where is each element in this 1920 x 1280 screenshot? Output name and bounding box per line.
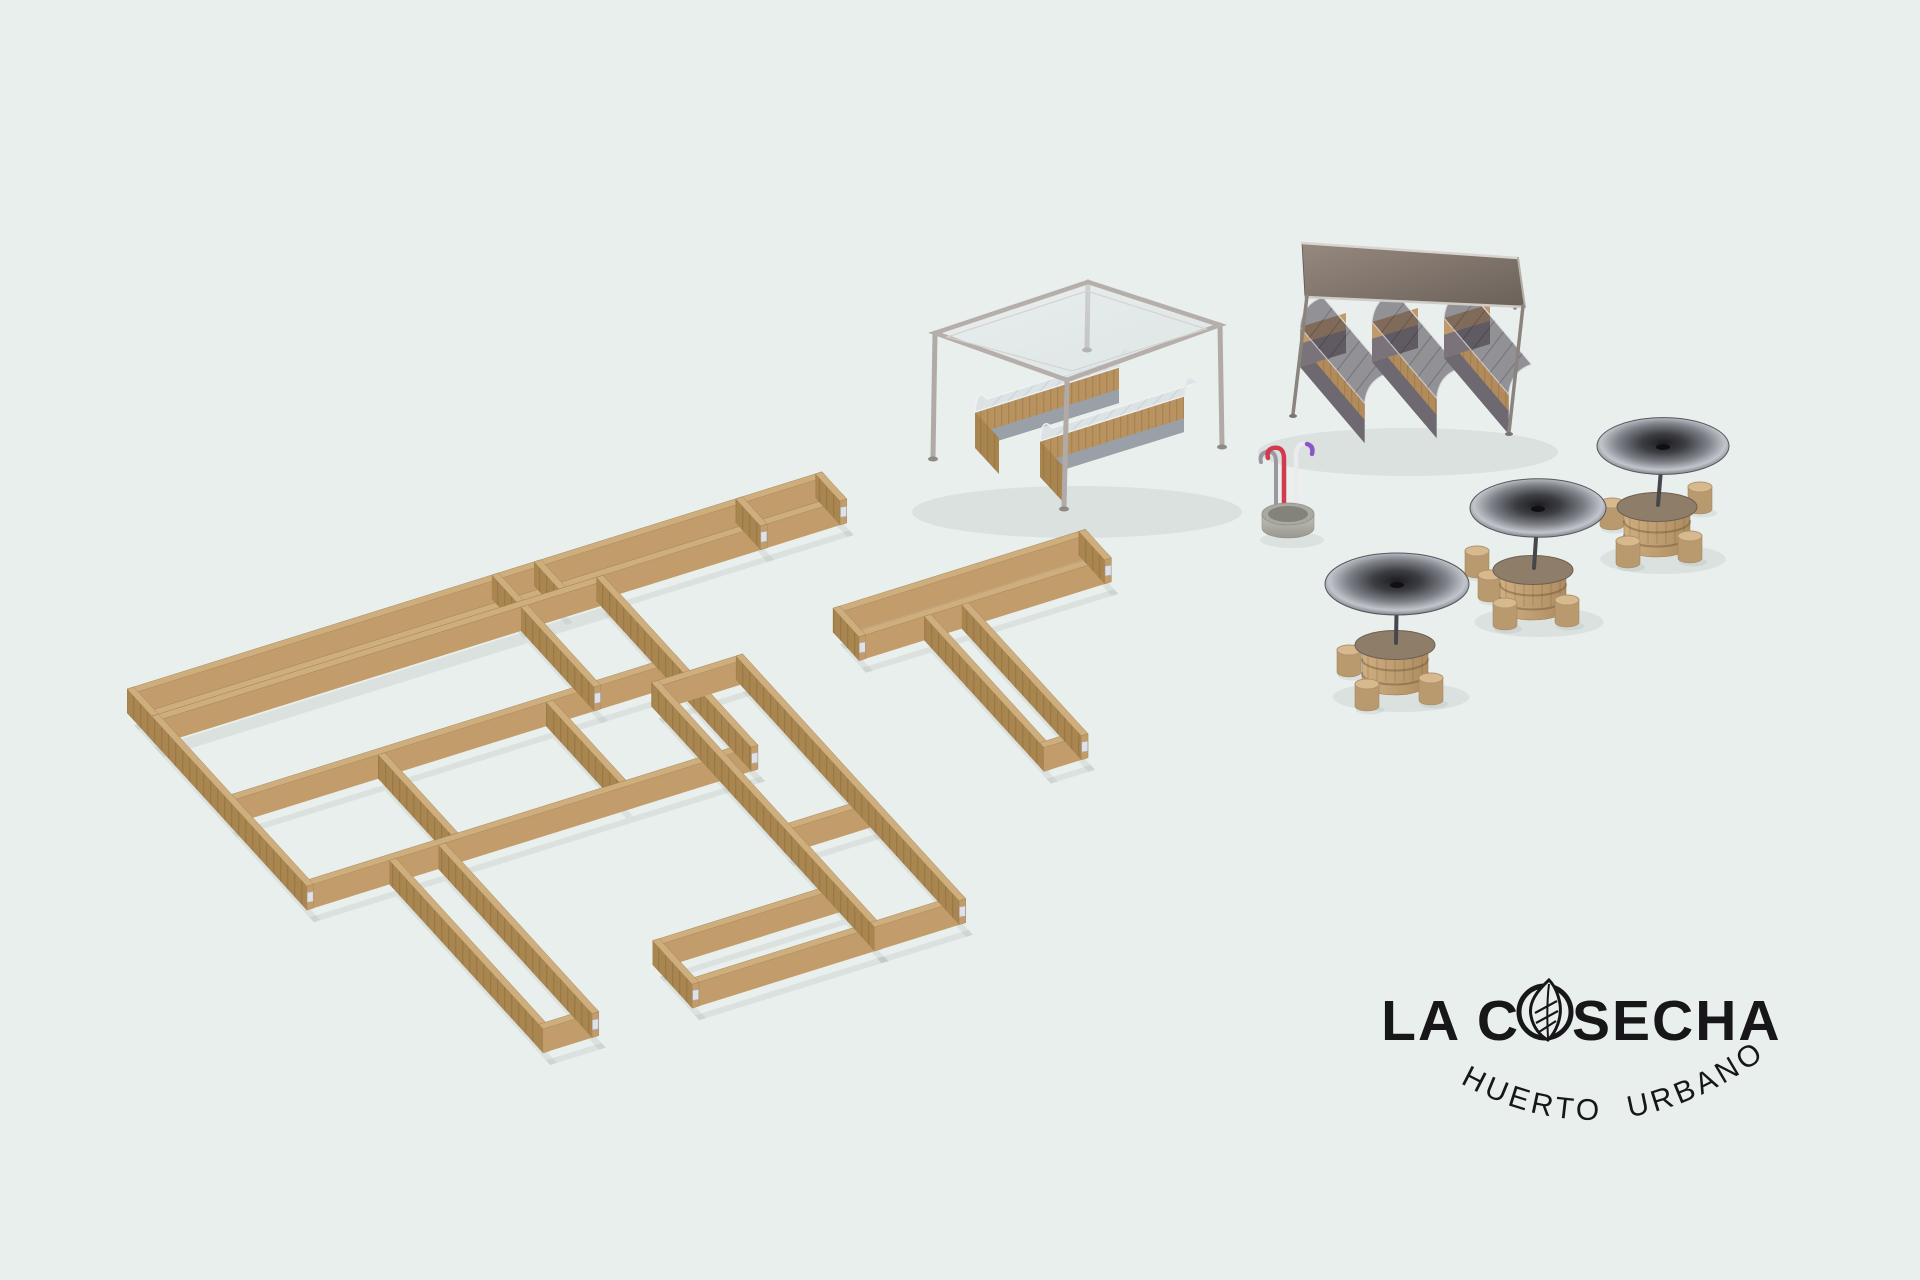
render-stage: LA C SECHA HUERTO URBANO — [0, 0, 1920, 1280]
brand-title-left: LA C — [1381, 989, 1520, 1053]
scene-render: LA C SECHA HUERTO URBANO — [0, 0, 1920, 1280]
